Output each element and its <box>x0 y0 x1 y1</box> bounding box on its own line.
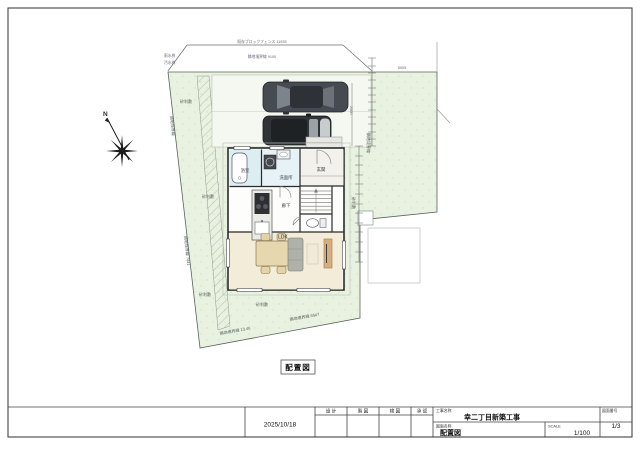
bathroom-label: 浴室 <box>241 167 250 174</box>
dining-table <box>256 241 290 266</box>
kitchen-sink <box>255 222 269 234</box>
gravel-label: 砂利敷 <box>351 197 357 209</box>
burner-icon <box>260 196 265 201</box>
gravel-label: 砂利敷 <box>180 98 192 104</box>
col-design-label: 設 計 <box>326 408 337 415</box>
caption-text: 配置図 <box>285 362 311 372</box>
neighbor-building <box>368 228 420 283</box>
north-letter: N <box>103 111 108 118</box>
dim-top-right: 5005 <box>398 66 406 70</box>
burner-icon <box>256 204 261 209</box>
dim-parking: 2500 <box>349 106 353 114</box>
col-draft-label: 製 図 <box>358 408 369 415</box>
caption-box: 配置図 <box>281 360 315 374</box>
sheet-number: 1/3 <box>611 423 620 430</box>
hall-label: 廊下 <box>282 202 291 209</box>
sheet-number-label: 図面番号 <box>602 408 618 413</box>
burner-icon <box>263 204 268 209</box>
toilet <box>307 219 327 228</box>
drawing-name-label: 図面名称 <box>436 424 452 429</box>
road-boundary-label: 隣地境界線 9100 <box>248 54 277 59</box>
faucet-icon <box>261 220 263 222</box>
project-name: 幸二丁目新築工事 <box>464 413 520 422</box>
low-table <box>307 244 318 264</box>
tv-board <box>324 239 332 268</box>
washroom-label: 洗面所 <box>279 174 293 181</box>
site-plan-sheet: 既存ブロックフェンス 11935 隣地境界線 9100 5005 2500 <box>0 0 640 453</box>
scale-label: SCALE <box>548 424 561 429</box>
gravel-label: 砂利敷 <box>199 291 211 297</box>
date-value: 2025/10/18 <box>264 422 297 429</box>
rain-pit-label: 雨水桝 <box>164 53 176 58</box>
col-check-label: 検 図 <box>390 408 401 415</box>
boundary-right-label: 隣地境界線 <box>366 133 372 153</box>
sewage-pit-label: 汚水桝 <box>164 60 176 65</box>
sofa <box>288 238 303 271</box>
house: 浴室 洗面所 廊下 玄関 LDK <box>223 143 350 295</box>
ldk-label: LDK <box>278 235 288 241</box>
entrance-label: 玄関 <box>317 166 326 173</box>
project-label: 工事名称 <box>436 408 452 413</box>
col-approve-label: 承 認 <box>417 408 428 415</box>
scale-value: 1/100 <box>574 430 591 437</box>
drawing-canvas: 既存ブロックフェンス 11935 隣地境界線 9100 5005 2500 <box>0 0 640 453</box>
vanity-sink <box>280 152 288 157</box>
car-large <box>263 80 348 115</box>
gravel-label: 砂利敷 <box>202 193 214 199</box>
drawing-name: 配置図 <box>440 428 461 437</box>
gravel-label: 砂利敷 <box>256 301 268 307</box>
fence-top-label: 既存ブロックフェンス 11935 <box>237 39 286 44</box>
